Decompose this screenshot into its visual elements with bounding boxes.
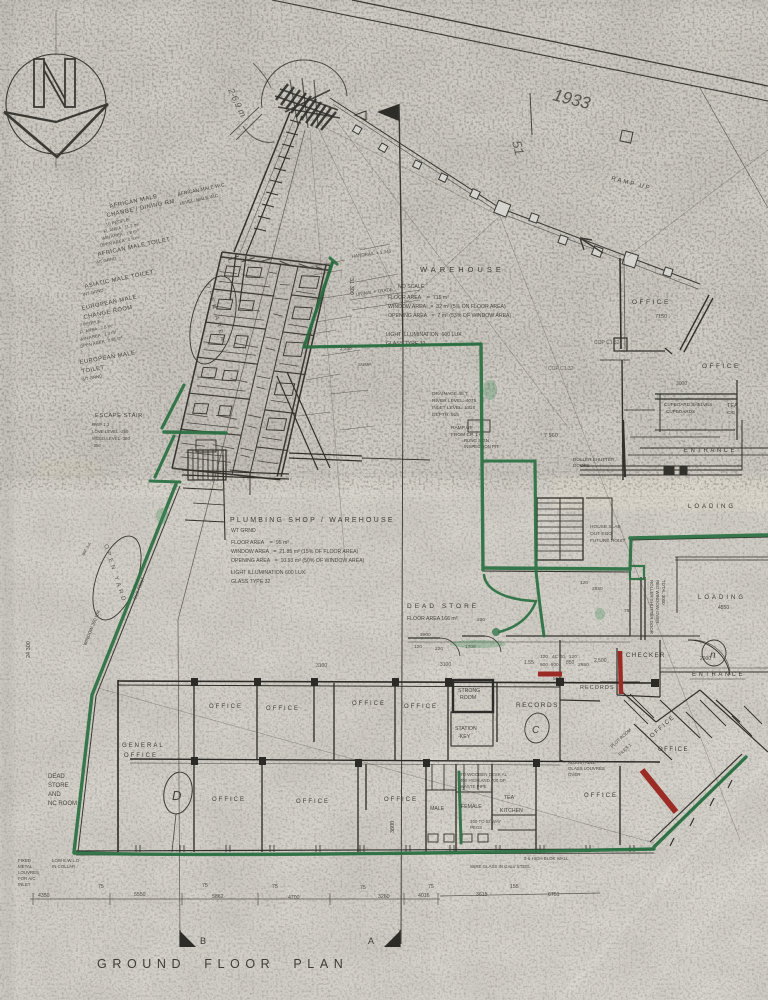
svg-text:RUNG SIGN: RUNG SIGN: [464, 438, 489, 443]
svg-text:OPENING AREA = 7 m² (53% O: OPENING AREA = 7 m² (53% OF WINDOW AREA): [388, 313, 511, 319]
svg-text:75: 75: [360, 885, 366, 891]
svg-text:ROLLER SHUTTER: ROLLER SHUTTER: [573, 457, 615, 462]
svg-text:COP C1 32: COP C1 32: [548, 366, 574, 372]
svg-text:LOADING: LOADING: [698, 595, 746, 601]
svg-text:OFFICE: OFFICE: [632, 299, 671, 306]
svg-text:D: D: [172, 788, 181, 803]
svg-text:HOUSE SLAB: HOUSE SLAB: [590, 524, 621, 530]
svg-text:LOUVRES: LOUVRES: [18, 870, 39, 875]
svg-text:OPENING AREA = 10.93 m² (5: OPENING AREA = 10.93 m² (50% OF WINDOW A…: [231, 558, 365, 564]
svg-text:LOW E.W.L.D: LOW E.W.L.D: [52, 858, 79, 863]
svg-text:GROUND FLOOR PLAN: GROUND FLOOR PLAN: [97, 957, 348, 971]
svg-text:OFFICE: OFFICE: [658, 747, 689, 753]
svg-text:STORE: STORE: [48, 783, 69, 789]
svg-text:PLUMBING SHOP / WAREHOUSE: PLUMBING SHOP / WAREHOUSE: [230, 517, 395, 524]
svg-text:5862: 5862: [212, 894, 224, 900]
svg-text:OFFICE: OFFICE: [584, 793, 618, 799]
svg-text:24 300: 24 300: [26, 641, 32, 658]
svg-text:850: 850: [566, 660, 575, 666]
svg-text:3600: 3600: [390, 821, 396, 833]
svg-text:3100: 3100: [316, 663, 327, 669]
svg-text:DEAD STORE: DEAD STORE: [407, 603, 479, 610]
svg-text:OFFICE: OFFICE: [702, 363, 741, 370]
svg-text:6751: 6751: [548, 892, 560, 898]
svg-text:OFFICE: OFFICE: [124, 753, 158, 759]
svg-text:STRONG: STRONG: [458, 688, 480, 694]
svg-text:METAL: METAL: [18, 864, 33, 869]
svg-text:WAREHOUSE: WAREHOUSE: [420, 265, 505, 274]
svg-text:ROLLER SHUTTER DOOR: ROLLER SHUTTER DOOR: [649, 580, 654, 634]
svg-text:RWP 1.2: RWP 1.2: [92, 422, 110, 427]
svg-text:LOADING: LOADING: [688, 504, 736, 510]
svg-text:TEA: TEA: [727, 403, 738, 409]
svg-text:OFFICE: OFFICE: [352, 701, 386, 707]
svg-text:5550: 5550: [134, 892, 146, 898]
svg-text:OFFICE: OFFICE: [209, 704, 243, 710]
svg-text:4700: 4700: [288, 895, 300, 901]
svg-text:WEED LEVEL -350: WEED LEVEL -350: [92, 436, 130, 441]
svg-text:LIGHT ILLUMINATION 600 LUX: LIGHT ILLUMINATION 600 LUX: [231, 570, 306, 576]
svg-text:220: 220: [477, 617, 485, 623]
svg-text:FOR A/C: FOR A/C: [18, 876, 36, 881]
svg-text:FIXED: FIXED: [18, 858, 31, 863]
svg-text:CUPBOARDS: CUPBOARDS: [666, 409, 695, 414]
svg-text:2650: 2650: [578, 662, 589, 668]
svg-text:OFFICE: OFFICE: [296, 799, 330, 805]
svg-text:OUT EGG: OUT EGG: [590, 531, 612, 537]
svg-text:ADJUSTABLE: ADJUSTABLE: [568, 760, 596, 765]
svg-text:7150: 7150: [655, 314, 667, 320]
svg-text:AND: AND: [48, 792, 61, 798]
svg-text:DOORS: DOORS: [573, 463, 590, 468]
svg-text:RAMP UP: RAMP UP: [451, 425, 473, 431]
svg-text:A: A: [368, 936, 374, 946]
svg-text:CIG: CIG: [727, 410, 736, 415]
svg-text:FEMALE: FEMALE: [461, 804, 482, 810]
svg-text:120: 120: [414, 644, 422, 650]
svg-text:3-6 HIGH BLOK WALL: 3-6 HIGH BLOK WALL: [524, 856, 569, 861]
svg-text:IN COLLAR: IN COLLAR: [52, 864, 75, 869]
svg-text:3260: 3260: [378, 894, 390, 900]
svg-text:PEGS: PEGS: [470, 825, 482, 830]
svg-text:120: 120: [580, 580, 588, 586]
svg-text:400 HIGH AND 700 DP: 400 HIGH AND 700 DP: [460, 778, 506, 783]
svg-text:OFFICE: OFFICE: [266, 706, 300, 712]
svg-text:4016: 4016: [418, 893, 430, 899]
svg-text:WIRE GLASS IN GALV STEEL: WIRE GLASS IN GALV STEEL: [470, 864, 531, 869]
svg-text:GENERAL: GENERAL: [122, 743, 165, 749]
svg-text:TO WOODEN DESK AL: TO WOODEN DESK AL: [460, 772, 508, 777]
svg-text:WINDOW AREA = 32 m² (5% ON: WINDOW AREA = 32 m² (5% ON FLOOR AREA): [388, 304, 506, 310]
svg-text:RIVER LEVEL: 4075: RIVER LEVEL: 4075: [432, 398, 477, 404]
svg-text:155: 155: [510, 884, 519, 890]
svg-text:B: B: [200, 936, 206, 946]
svg-text:MALE: MALE: [430, 806, 445, 812]
svg-text:75: 75: [202, 883, 208, 889]
svg-text:75: 75: [428, 884, 434, 890]
svg-text:INLET: INLET: [18, 882, 31, 887]
svg-text:ROOM: ROOM: [460, 695, 476, 701]
svg-text:2900: 2900: [420, 632, 431, 638]
svg-text:RED WINDOW OVER: RED WINDOW OVER: [655, 580, 660, 623]
svg-text:DEPTH: 915: DEPTH: 915: [432, 412, 459, 418]
svg-text:FLOOR AREA 166 m²: FLOOR AREA 166 m²: [407, 616, 458, 622]
svg-text:FUTURE HOIST: FUTURE HOIST: [590, 538, 626, 544]
svg-text:DRAINAGE 48 T: DRAINAGE 48 T: [432, 391, 468, 397]
svg-text:NC ROOM: NC ROOM: [48, 801, 77, 807]
svg-text:31 300: 31 300: [348, 278, 354, 295]
svg-text:FLOOR AREA = 95 m²: FLOOR AREA = 95 m²: [231, 540, 289, 546]
svg-text:RECORDS.: RECORDS.: [516, 702, 562, 709]
svg-text:COP C1 32: COP C1 32: [594, 340, 620, 346]
svg-text:OFFICE: OFFICE: [384, 797, 418, 803]
svg-text:TOTAL 3000: TOTAL 3000: [661, 580, 666, 605]
svg-text:OFFICE: OFFICE: [404, 704, 438, 710]
svg-text:-KEY: -KEY: [458, 734, 471, 740]
svg-text:2850: 2850: [592, 586, 603, 592]
svg-text:INLET LEVEL: 1315: INLET LEVEL: 1315: [432, 405, 475, 411]
svg-text:TEA: TEA: [504, 795, 515, 801]
svg-text:3100: 3100: [440, 662, 451, 668]
svg-text:ESCAPE STAIR: ESCAPE STAIR: [95, 413, 143, 419]
svg-text:4550: 4550: [718, 605, 729, 611]
svg-text:WT GRND: WT GRND: [231, 528, 256, 534]
svg-text:DEAD: DEAD: [48, 774, 65, 780]
svg-text:C: C: [532, 725, 540, 736]
svg-text:STATION: STATION: [455, 726, 477, 732]
svg-text:2,340: 2,340: [340, 346, 352, 351]
svg-text:KITCHEN: KITCHEN: [500, 808, 523, 814]
svg-text:-350: -350: [92, 443, 101, 448]
svg-text:NO SCALE: NO SCALE: [398, 284, 425, 290]
svg-text:OFFICE: OFFICE: [212, 797, 246, 803]
svg-text:CHECKER: CHECKER: [626, 653, 666, 659]
svg-text:2900: 2900: [700, 656, 711, 662]
svg-text:GLASS TYPE 32: GLASS TYPE 32: [231, 579, 271, 585]
svg-text:75: 75: [272, 884, 278, 890]
svg-text:220: 220: [435, 646, 443, 652]
svg-text:7 560: 7 560: [544, 433, 558, 439]
svg-text:ENTRANCE: ENTRANCE: [692, 672, 745, 678]
svg-text:WINDOW AREA = 21.85 m² (15: WINDOW AREA = 21.85 m² (15% OF FLOOR ARE…: [231, 549, 359, 555]
svg-text:CUPBOARD SHELVES: CUPBOARD SHELVES: [664, 402, 712, 407]
svg-text:600 600: 600 600: [540, 662, 559, 668]
svg-text:75: 75: [98, 884, 104, 890]
svg-text:RECORDS: RECORDS: [580, 685, 615, 691]
svg-text:GLASS LOUVRES: GLASS LOUVRES: [568, 766, 605, 771]
svg-text:OVER: OVER: [568, 772, 580, 777]
svg-text:SUMP: SUMP: [358, 362, 371, 367]
svg-text:ENTRANCE: ENTRANCE: [684, 448, 737, 454]
svg-text:3000: 3000: [676, 381, 687, 387]
svg-text:LIGHT ILLUMINATION 600 LUX: LIGHT ILLUMINATION 600 LUX: [386, 332, 462, 338]
svg-text:1.55: 1.55: [524, 660, 534, 666]
svg-text:4350: 4350: [38, 893, 50, 899]
svg-text:75: 75: [624, 608, 630, 614]
svg-text:2,500: 2,500: [594, 658, 607, 664]
svg-text:LOVE LEVEL -350: LOVE LEVEL -350: [92, 429, 129, 434]
svg-text:350 TO 52 WAY: 350 TO 52 WAY: [470, 819, 501, 824]
